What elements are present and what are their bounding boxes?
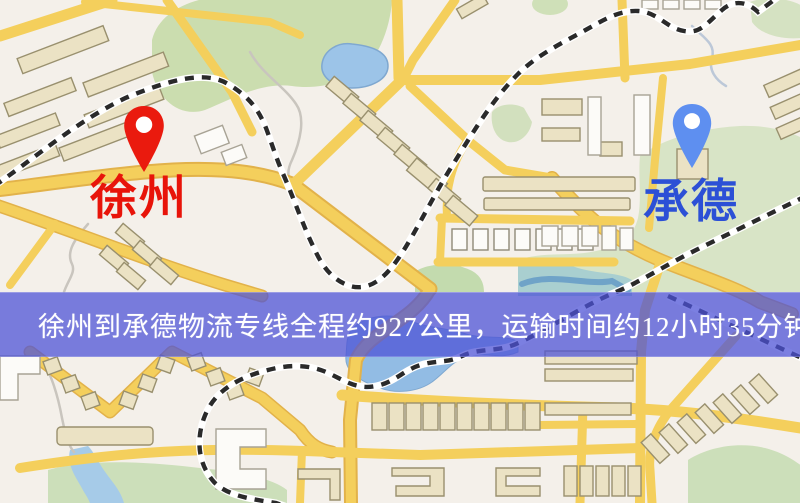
route-info-text: 徐州到承德物流专线全程约927公里，运输时间约12小时35分钟. (38, 305, 800, 344)
map-canvas: 徐州 承德 徐州到承德物流专线全程约927公里，运输时间约12小时35分钟. (0, 0, 800, 503)
xuzhou-marker[interactable] (122, 106, 166, 172)
route-info-banner: 徐州到承德物流专线全程约927公里，运输时间约12小时35分钟. (0, 292, 800, 357)
xuzhou-label: 徐州 (90, 176, 188, 223)
map-graphics (0, 0, 800, 503)
chengde-label: 承德 (643, 179, 739, 225)
map-pin-icon (122, 106, 166, 172)
chengde-marker[interactable] (667, 104, 717, 168)
map-pin-icon (667, 104, 717, 168)
